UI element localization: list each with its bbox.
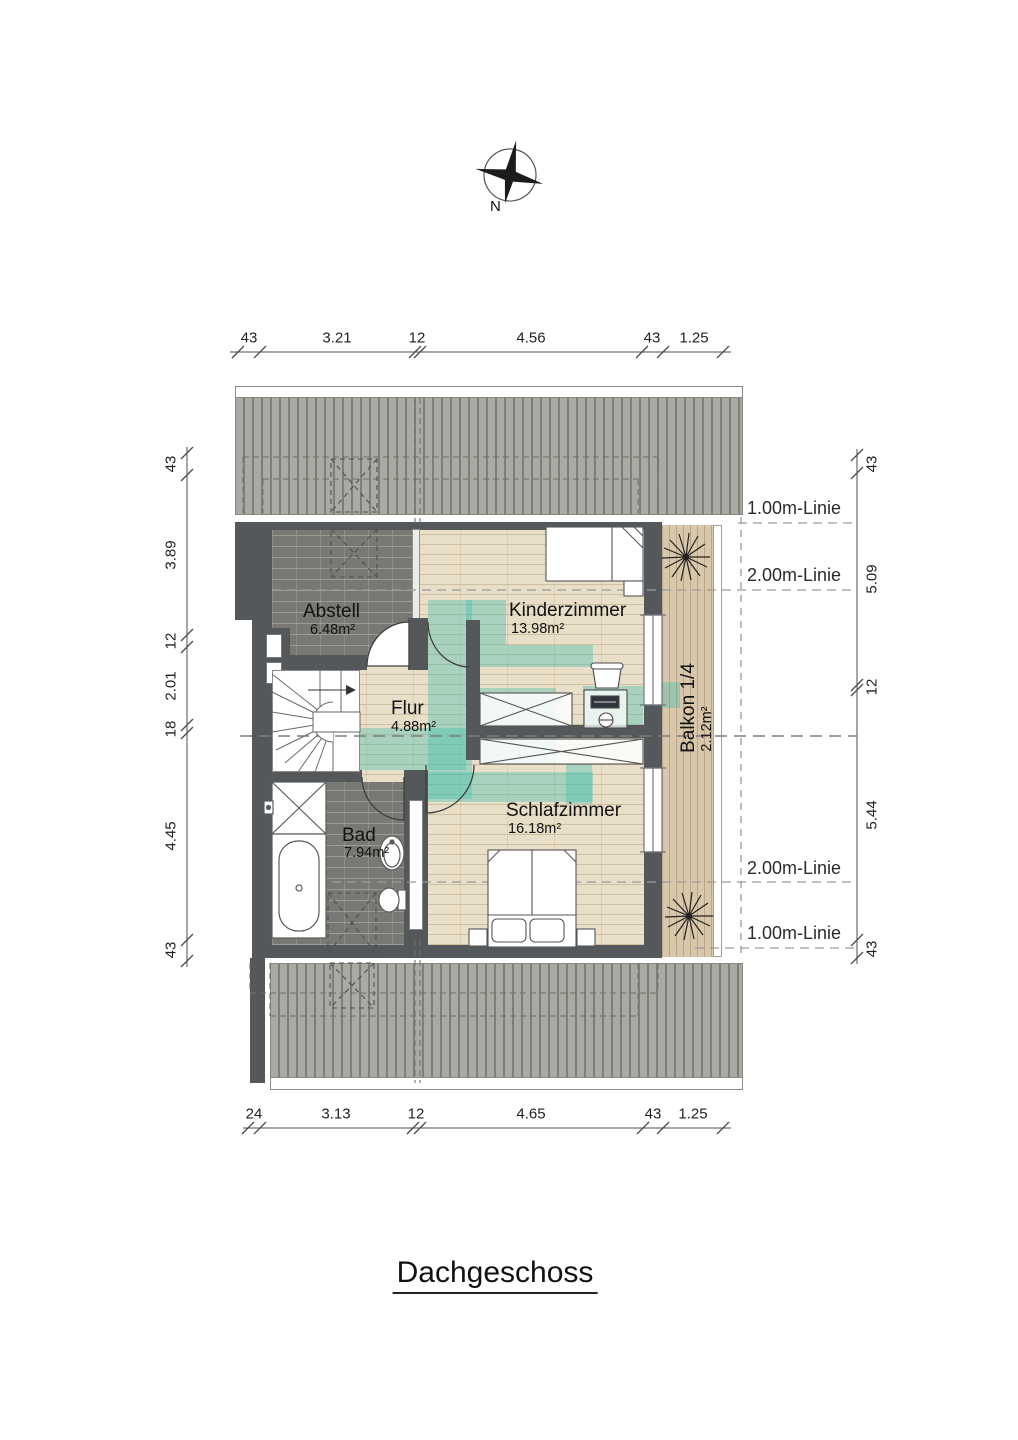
dim-left-3: 2.01 xyxy=(163,671,180,700)
dim-top-3: 4.56 xyxy=(516,330,545,347)
height-line-label-bottom-2m: 2.00m-Linie xyxy=(747,858,841,879)
wall-right-lower xyxy=(644,852,662,958)
dim-right-2: 12 xyxy=(864,679,881,696)
room-area-kinderzimmer: 13.98m² xyxy=(511,621,564,637)
installation-shaft xyxy=(409,800,423,930)
dim-bottom-0: 24 xyxy=(246,1106,263,1123)
wall-left-block xyxy=(235,522,252,620)
room-area-schlafzimmer: 16.18m² xyxy=(508,821,561,837)
room-label-abstell: Abstell xyxy=(303,601,360,623)
dim-top-1: 3.21 xyxy=(322,330,351,347)
room-area-abstell: 6.48m² xyxy=(310,622,355,638)
dim-top-2: 12 xyxy=(409,330,426,347)
bad-floor xyxy=(272,782,404,945)
dim-left-1: 3.89 xyxy=(163,540,180,569)
dimension-chain-top xyxy=(230,346,731,358)
dim-bottom-2: 12 xyxy=(408,1106,425,1123)
wall-knee-top xyxy=(235,522,662,530)
dim-bottom-3: 4.65 xyxy=(516,1106,545,1123)
roof-surface-bottom xyxy=(270,963,743,1079)
room-label-kinderzimmer: Kinderzimmer xyxy=(509,600,626,622)
room-label-schlafzimmer: Schlafzimmer xyxy=(506,800,621,822)
dim-top-4: 43 xyxy=(644,330,661,347)
dimension-chain-bottom xyxy=(242,1122,731,1134)
dim-right-0: 43 xyxy=(864,456,881,473)
wall-flur-post xyxy=(408,618,428,670)
room-label-balkon: Balkon 1/4 xyxy=(678,663,700,753)
dim-bottom-4: 43 xyxy=(645,1106,662,1123)
dimension-chain-left xyxy=(181,447,193,967)
dimension-chain-right xyxy=(851,449,863,964)
dim-right-4: 43 xyxy=(864,941,881,958)
room-area-balkon: 2.12m² xyxy=(699,706,715,751)
chimney-flue-1 xyxy=(266,634,282,658)
highlight-desk-zone xyxy=(583,686,643,727)
dim-left-2: 12 xyxy=(163,633,180,650)
dim-bottom-1: 3.13 xyxy=(321,1106,350,1123)
wall-flur-east xyxy=(466,620,480,760)
highlight-kinderzimmer-band xyxy=(466,645,593,667)
floor-plan-canvas: N xyxy=(0,0,1018,1440)
compass-star-icon xyxy=(455,128,565,228)
compass-north-label: N xyxy=(490,198,501,215)
dim-right-3: 5.44 xyxy=(864,800,881,829)
dim-bottom-5: 1.25 xyxy=(678,1106,707,1123)
roof-ridge-edge-bottom xyxy=(270,1077,743,1090)
wall-abstell-east xyxy=(412,529,420,620)
height-line-label-top-2m: 2.00m-Linie xyxy=(747,565,841,586)
dim-left-6: 43 xyxy=(163,942,180,959)
wall-left-lower-column xyxy=(250,958,265,1083)
height-line-label-top-1m: 1.00m-Linie xyxy=(747,498,841,519)
wall-partition-kinder-schlaf xyxy=(478,725,648,738)
stairwell-area xyxy=(272,670,360,772)
dim-top-0: 43 xyxy=(241,330,258,347)
dim-left-4: 18 xyxy=(163,721,180,738)
highlight-connector xyxy=(566,764,592,804)
room-area-flur: 4.88m² xyxy=(391,719,436,735)
wall-left xyxy=(252,522,272,958)
height-line-label-bottom-1m: 1.00m-Linie xyxy=(747,923,841,944)
compass-rose xyxy=(455,128,565,228)
wall-right-upper xyxy=(644,522,662,615)
room-label-flur: Flur xyxy=(391,698,424,720)
dim-left-0: 43 xyxy=(163,456,180,473)
wall-knee-bottom xyxy=(272,945,662,958)
dim-left-5: 4.45 xyxy=(163,821,180,850)
dim-right-1: 5.09 xyxy=(864,564,881,593)
room-area-bad: 7.94m² xyxy=(344,845,389,861)
sheet-title: Dachgeschoss xyxy=(393,1256,598,1294)
room-label-bad: Bad xyxy=(342,825,376,847)
roof-surface-top xyxy=(235,397,743,515)
dim-top-5: 1.25 xyxy=(679,330,708,347)
